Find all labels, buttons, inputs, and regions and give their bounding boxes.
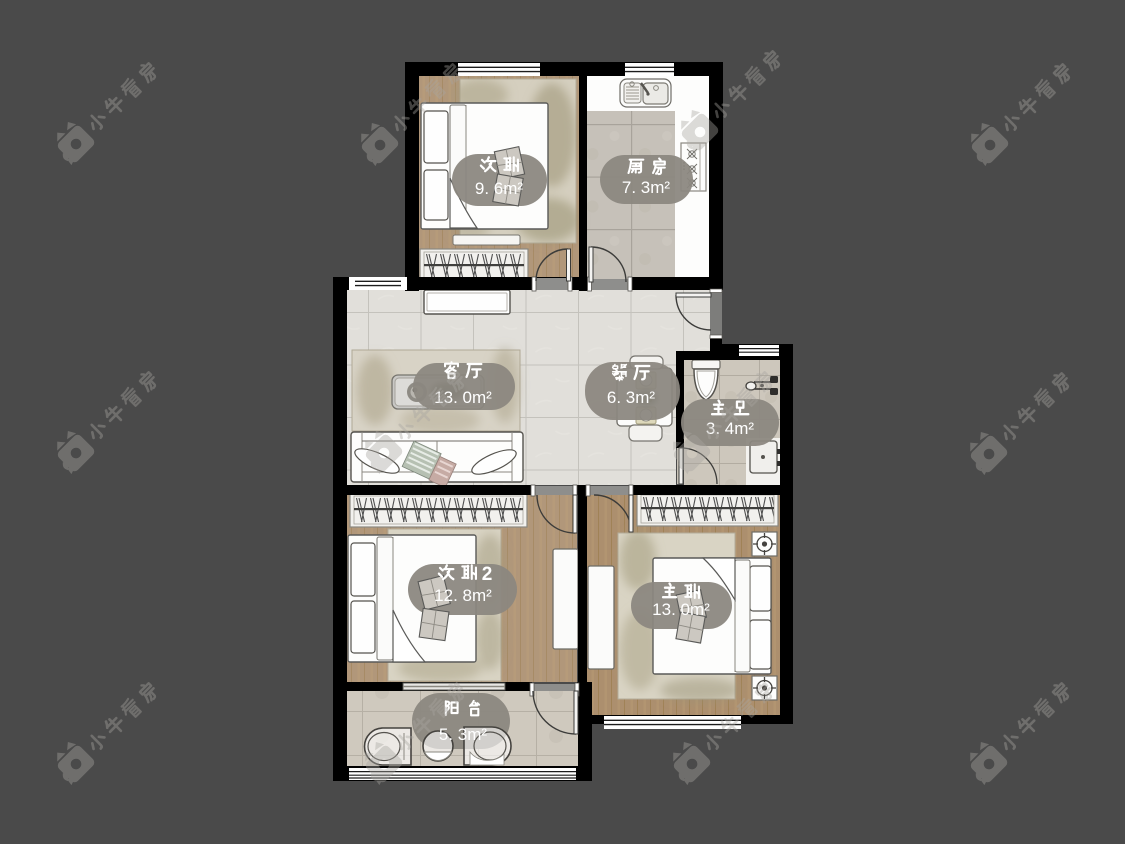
svg-text:6. 3m²: 6. 3m² xyxy=(607,388,656,407)
svg-text:9. 6m²: 9. 6m² xyxy=(475,179,524,198)
svg-text:2: 2 xyxy=(482,564,493,585)
svg-text:13. 0m²: 13. 0m² xyxy=(652,600,710,619)
svg-text:12. 8m²: 12. 8m² xyxy=(434,586,492,605)
svg-text:7. 3m²: 7. 3m² xyxy=(622,178,671,197)
svg-text:5. 3m²: 5. 3m² xyxy=(439,725,488,744)
